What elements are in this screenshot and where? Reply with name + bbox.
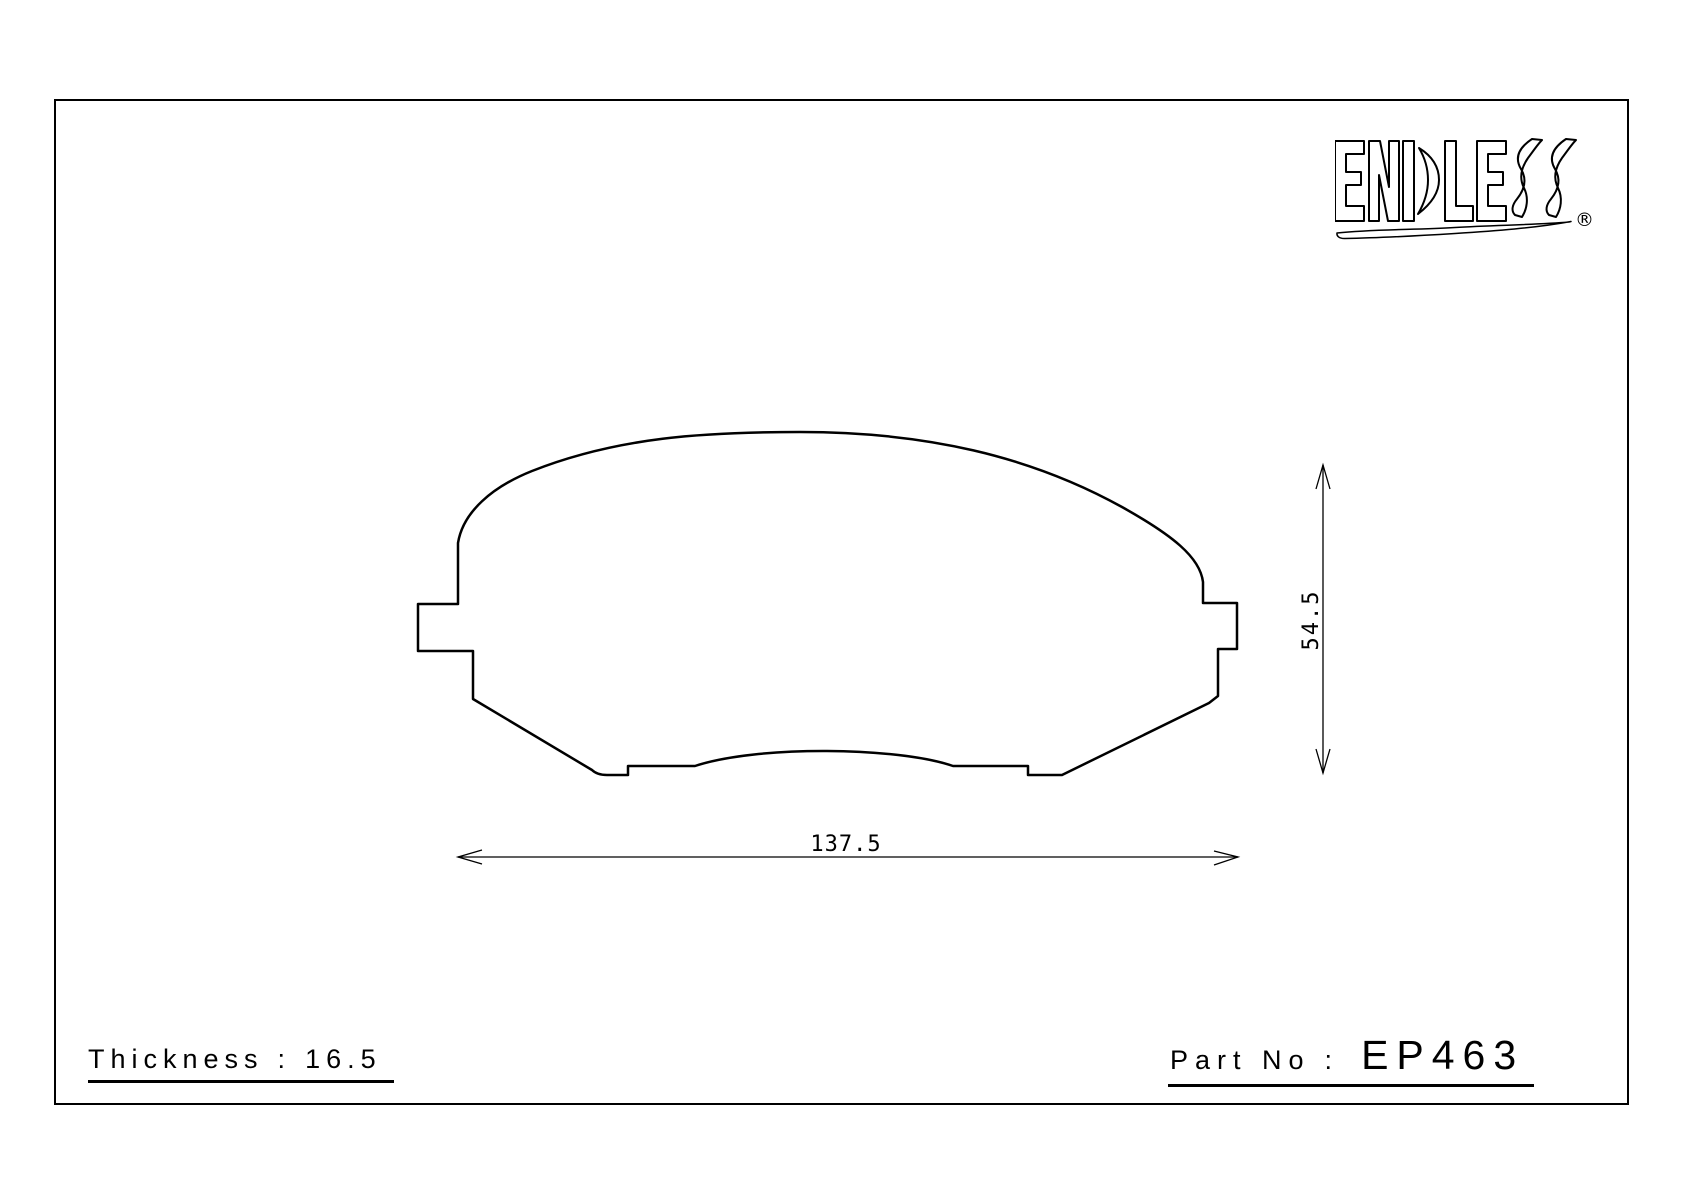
part-number-note: Part No : EP463 [1168,1032,1534,1087]
brake-pad-outline [418,432,1237,775]
drawing-sheet: 137.5 54.5 ENDLESS [0,0,1684,1190]
thickness-label: Thickness [88,1044,264,1075]
height-dimension-label: 54.5 [1299,580,1323,660]
endless-logo-lettering [1335,135,1595,253]
part-number-value: EP463 [1361,1032,1524,1079]
endless-logo: ENDLESS [1335,135,1595,253]
thickness-separator: : [278,1044,292,1075]
thickness-value: 16.5 [305,1044,382,1075]
logo-underline-stroke [1337,222,1571,239]
registered-mark-icon: ® [1575,211,1594,230]
part-number-separator: : [1325,1045,1340,1076]
thickness-note: Thickness : 16.5 [88,1044,394,1083]
width-dimension-label: 137.5 [780,832,912,856]
part-number-label: Part No [1170,1045,1311,1076]
